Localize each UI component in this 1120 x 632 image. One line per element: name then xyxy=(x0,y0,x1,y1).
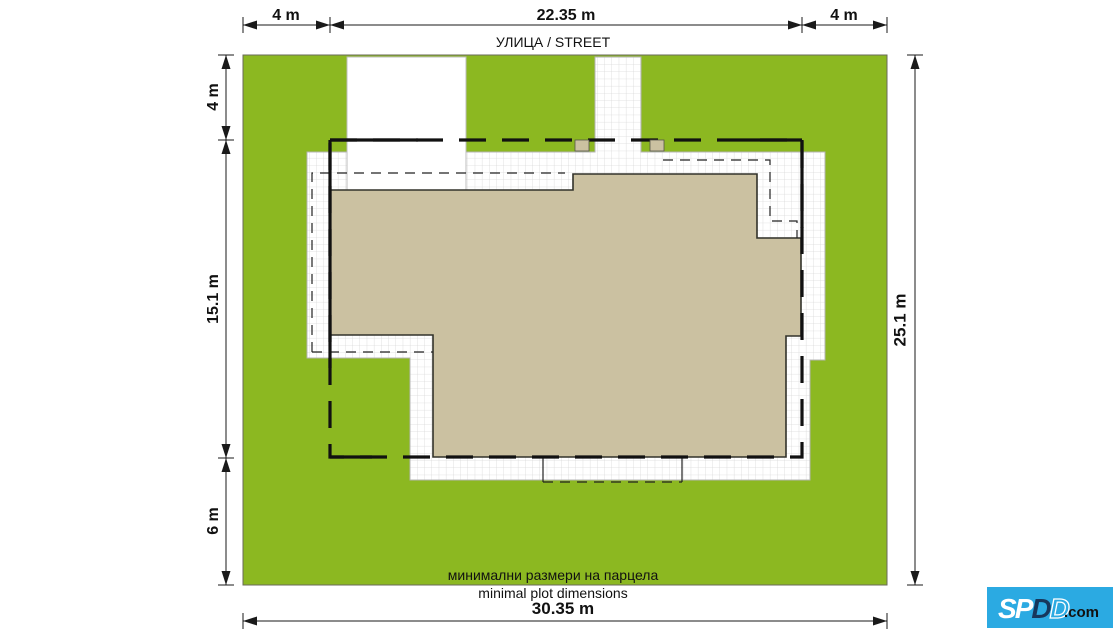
dim-bottom-plot-width: 30.35 m xyxy=(532,599,594,618)
dim-top-left-setback: 4 m xyxy=(272,7,300,24)
spdd-logo-text: SPDD xyxy=(998,593,1070,624)
gate-pillar-right xyxy=(650,140,664,151)
dim-left-envelope-depth: 15.1 m xyxy=(205,274,222,324)
dim-left-rear-setback: 6 m xyxy=(205,507,222,535)
site-plan-drawing: 4 m 22.35 m 4 m УЛИЦА / STREET 4 m 15.1 … xyxy=(0,0,1120,632)
spdd-logo-tld: .com xyxy=(1064,604,1099,621)
caption-bulgarian: минимални размери на парцела xyxy=(448,567,659,583)
dim-right-plot-depth: 25.1 m xyxy=(890,294,909,347)
dim-top-envelope-width: 22.35 m xyxy=(537,7,596,24)
dim-left-front-setback: 4 m xyxy=(205,83,222,111)
dim-top-right-setback: 4 m xyxy=(830,7,858,24)
gate-pillar-left xyxy=(575,140,589,151)
spdd-logo: SPDD .com xyxy=(987,587,1113,628)
site-plan-canvas: 4 m 22.35 m 4 m УЛИЦА / STREET 4 m 15.1 … xyxy=(0,0,1120,632)
driveway xyxy=(347,57,466,190)
street-label: УЛИЦА / STREET xyxy=(496,34,611,50)
